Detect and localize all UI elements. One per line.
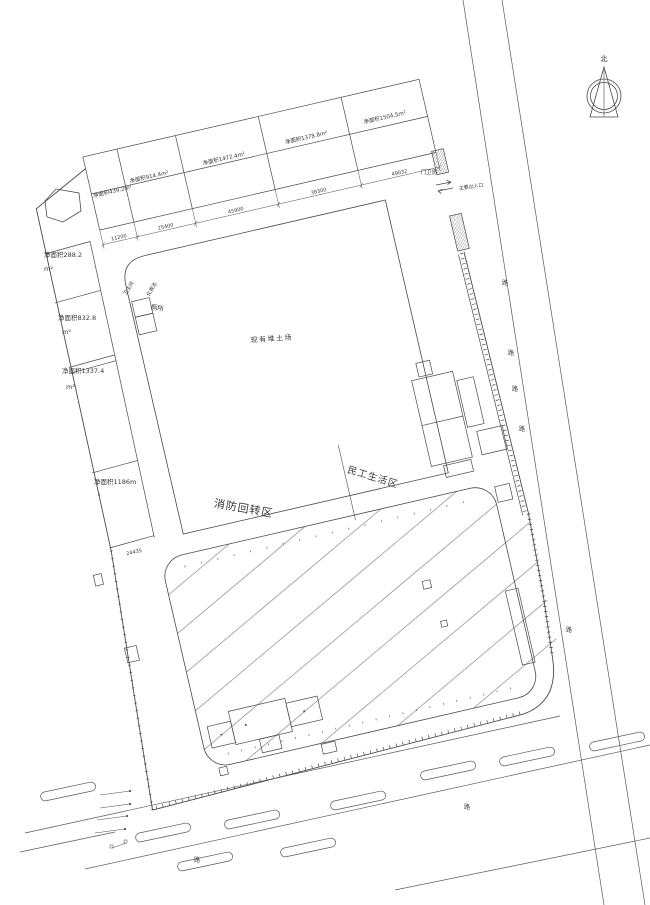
site-plan-svg: 净面积439.2m² 净面积914.4m² 净面积1472.4m² 净面积137… [0,0,650,905]
parcel-label-top-3: 净面积1472.4m² [202,150,246,168]
left-parcel-divider [68,355,114,368]
hatch-line [190,482,650,900]
workers-building-divider [422,416,463,425]
toilet-block [132,298,153,318]
left-dim-label: 24435 [126,548,143,557]
south-road-line-2 [85,745,650,869]
north-label: 北 [601,55,608,63]
workers-building-south [444,459,474,477]
soil-yard-outline [120,200,448,534]
hatch-line [0,482,248,900]
entrance-arrows [436,180,453,193]
gate-wall-south [450,213,470,251]
shops-band [83,79,436,230]
hatch-line [0,482,303,900]
left-parcel-divider [55,290,101,303]
hatch-line [135,482,633,900]
left-parcel-label-1: 净面积288.2 [44,250,82,259]
column-dot [245,724,247,726]
existing-building-annex [259,735,282,753]
workers-building-east [457,377,484,428]
west-boundary-ticks [94,551,170,810]
vehicle [280,837,337,857]
plan-group: 净面积439.2m² 净面积914.4m² 净面积1472.4m² 净面积137… [1,77,576,811]
toilet-block [135,313,157,335]
hatch-line [0,482,358,900]
vehicle [40,781,97,801]
east-strip-structure [505,588,535,665]
left-parcel-unit-4: ² [98,492,101,500]
east-road-char-4: 路 [519,425,525,433]
south-road-line-3 [395,838,650,890]
left-parcel-unit-2: m² [62,328,71,336]
corner-structure [495,483,513,502]
parcel-label-top-2: 净面积914.4m² [129,168,170,185]
left-parcel-label-4: 净面积1186m [94,477,136,486]
vehicle [224,809,281,829]
east-fence-ticks-lower [520,514,561,657]
left-parcel-unit-1: m² [44,265,53,273]
guard-house-label: 门卫房 [421,168,438,176]
roads [20,0,650,905]
vehicle [589,731,646,751]
parked-vehicles [40,731,646,871]
existing-building [205,691,327,763]
septic-tank-label: 化粪池 [145,281,159,297]
left-parcel-divider [109,536,154,548]
workers-living-label: 民工生活区 [346,464,400,491]
south-road-line-4 [20,832,115,852]
left-parcel-label-3: 净面积1337.4 [62,366,104,375]
vehicle [420,760,477,780]
workers-building-se [477,426,508,455]
parcel-label-top-4: 净面积1378.8m² [284,128,328,146]
small-structure [219,766,229,776]
east-fence-ticks [461,252,525,515]
left-parcel-unit-3: m² [66,383,75,391]
south-road-char-1: 路 [464,803,470,811]
east-boundary-lower [520,514,561,657]
vehicle [177,851,234,871]
east-road-char-5: 路 [566,626,572,634]
site-plan-canvas: 净面积439.2m² 净面积914.4m² 净面积1472.4m² 净面积137… [0,0,650,905]
pad-dots-bottom [228,687,516,754]
left-parcel-divider [92,460,138,473]
south-road-line-1 [25,716,560,833]
east-road-char-3: 路 [512,385,518,393]
left-parcel-label-2: 净面积832.8 [58,313,96,322]
east-fence [464,251,529,515]
soil-yard-label: 现有堆土场 [250,333,293,345]
washroom-label: 卫生间 [122,280,136,296]
workers-building-main [412,371,473,466]
east-road-char-1: 路 [502,279,508,287]
hatch-line [0,482,413,900]
left-parcel-inner-edge [86,242,158,538]
zone-divider-line [338,445,355,520]
shops-midline [91,116,427,194]
hatch-line [80,482,578,900]
hatch-line [245,482,650,900]
vehicle [330,790,387,810]
se-corner [512,657,564,714]
vehicle [135,822,192,842]
fire-turnaround-label: 消防回转区 [213,496,275,520]
north-arrow [587,67,621,117]
hatch-line [25,482,523,900]
parcel-label-top-5: 净面积1504.5m² [363,108,407,126]
parcel-label-top-1: 净面积439.2m² [92,183,133,200]
vehicle [499,746,556,766]
south-road-char-2: 路 [194,856,200,864]
hatch-line [0,482,468,900]
main-entrance-label: 主要出入口 [458,182,484,192]
shop-divider [258,116,275,189]
elevation-marks [95,790,131,848]
outbuilding-pentagon [45,189,81,222]
east-road-line-west [463,0,604,905]
west-fence-structure [93,574,103,587]
shop-divider [175,136,192,209]
small-structure [441,620,448,627]
small-structure [422,580,432,590]
shop-divider [341,97,358,170]
construction-hatch [0,482,650,900]
south-boundary [150,714,524,810]
east-road-char-2: 路 [508,349,514,357]
east-road-line-east [502,0,645,905]
